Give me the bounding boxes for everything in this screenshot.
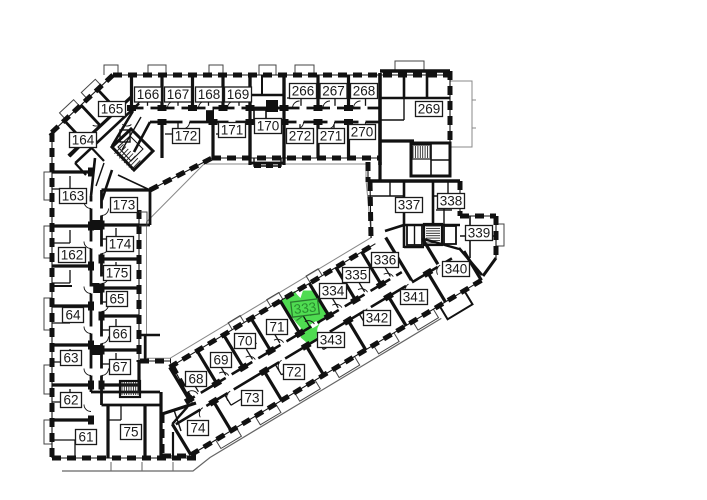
svg-text:62: 62	[63, 393, 78, 408]
svg-text:74: 74	[190, 421, 206, 436]
svg-text:164: 164	[72, 133, 95, 148]
svg-text:73: 73	[244, 391, 259, 406]
svg-text:63: 63	[63, 351, 78, 366]
svg-text:334: 334	[322, 284, 345, 299]
svg-text:270: 270	[351, 125, 374, 140]
svg-text:69: 69	[213, 353, 228, 368]
svg-text:175: 175	[106, 266, 129, 281]
svg-text:168: 168	[198, 87, 221, 102]
svg-text:174: 174	[109, 237, 132, 252]
svg-text:167: 167	[167, 87, 190, 102]
svg-text:67: 67	[112, 360, 127, 375]
svg-text:71: 71	[269, 320, 284, 335]
svg-text:272: 272	[289, 129, 312, 144]
svg-text:337: 337	[398, 198, 421, 213]
svg-text:173: 173	[113, 198, 136, 213]
svg-text:171: 171	[221, 123, 244, 138]
svg-text:340: 340	[445, 262, 468, 277]
svg-text:338: 338	[440, 194, 463, 209]
svg-text:268: 268	[353, 84, 376, 99]
svg-text:66: 66	[112, 327, 127, 342]
svg-text:343: 343	[320, 333, 343, 348]
svg-text:70: 70	[237, 334, 252, 349]
svg-text:170: 170	[257, 119, 280, 134]
svg-text:342: 342	[366, 311, 389, 326]
svg-text:172: 172	[175, 129, 198, 144]
svg-text:336: 336	[374, 253, 397, 268]
svg-text:68: 68	[188, 372, 203, 387]
svg-text:339: 339	[468, 226, 491, 241]
svg-text:341: 341	[403, 290, 426, 305]
svg-text:165: 165	[101, 102, 124, 117]
svg-text:333: 333	[293, 299, 317, 317]
svg-text:266: 266	[292, 84, 315, 99]
svg-text:65: 65	[109, 292, 124, 307]
svg-text:335: 335	[345, 268, 368, 283]
svg-text:64: 64	[65, 308, 81, 323]
svg-text:162: 162	[61, 248, 84, 263]
svg-text:271: 271	[320, 129, 343, 144]
svg-text:269: 269	[418, 102, 441, 117]
svg-text:267: 267	[322, 84, 345, 99]
svg-text:169: 169	[227, 87, 250, 102]
svg-text:163: 163	[62, 189, 85, 204]
svg-text:72: 72	[286, 365, 301, 380]
svg-text:61: 61	[78, 430, 93, 445]
svg-text:75: 75	[123, 425, 138, 440]
svg-text:166: 166	[137, 87, 160, 102]
